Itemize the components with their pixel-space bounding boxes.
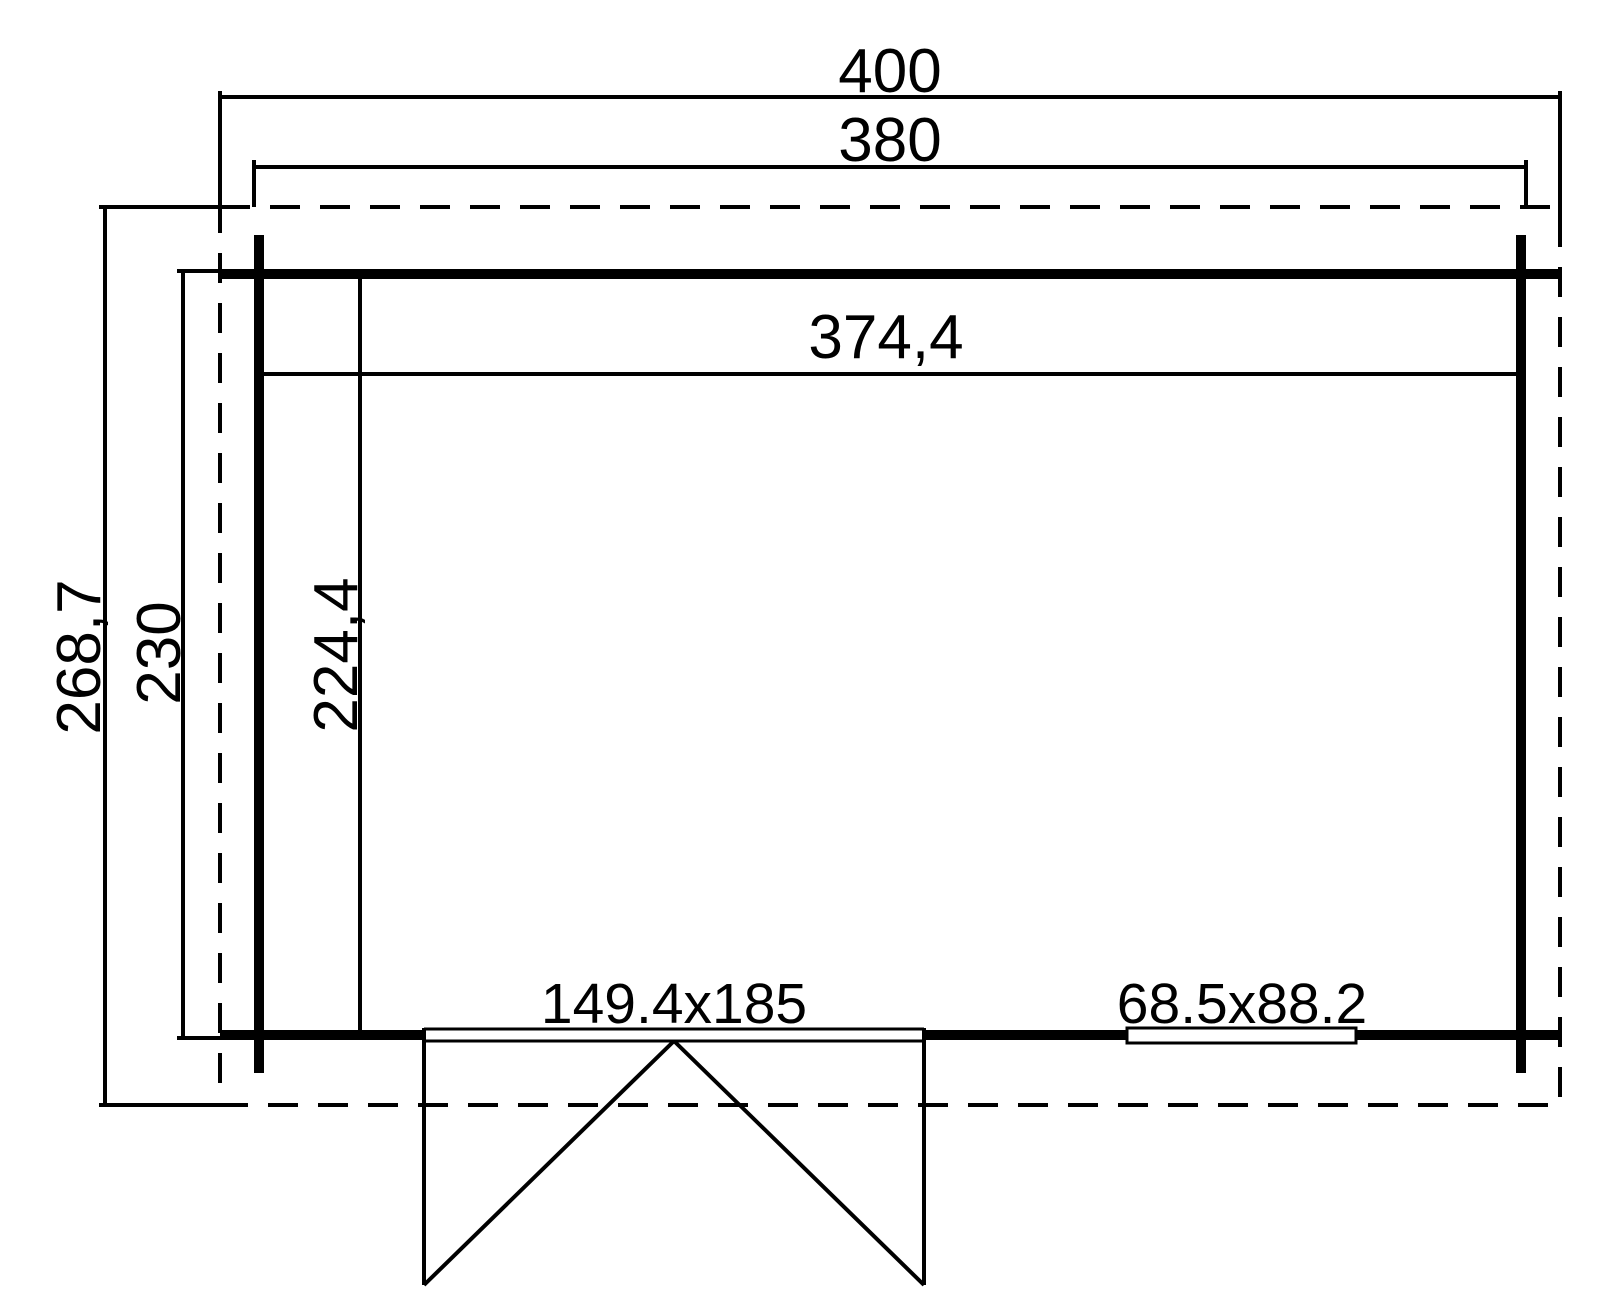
drawing-background [0, 0, 1619, 1312]
floor-plan-drawing: 400 380 374,4 268,7 230 224,4 149.4x185 … [0, 0, 1619, 1312]
wall-bottom-left-segment [220, 1030, 424, 1040]
wall-left [254, 235, 264, 1073]
wall-right [1516, 235, 1526, 1073]
label-inner-width: 374,4 [808, 303, 963, 372]
wall-bottom-right-segment [1356, 1030, 1560, 1040]
label-outer-depth: 230 [125, 601, 194, 704]
label-window-size: 68.5x88.2 [1117, 972, 1367, 1036]
label-roof-width: 400 [838, 37, 941, 106]
wall-bottom-middle-segment [924, 1030, 1127, 1040]
label-door-size: 149.4x185 [541, 972, 807, 1036]
label-inner-depth: 224,4 [302, 577, 371, 732]
label-roof-depth: 268,7 [45, 579, 114, 734]
floor-plan-canvas: 400 380 374,4 268,7 230 224,4 149.4x185 … [0, 0, 1619, 1312]
label-outer-width: 380 [838, 106, 941, 175]
wall-top [220, 269, 1560, 279]
